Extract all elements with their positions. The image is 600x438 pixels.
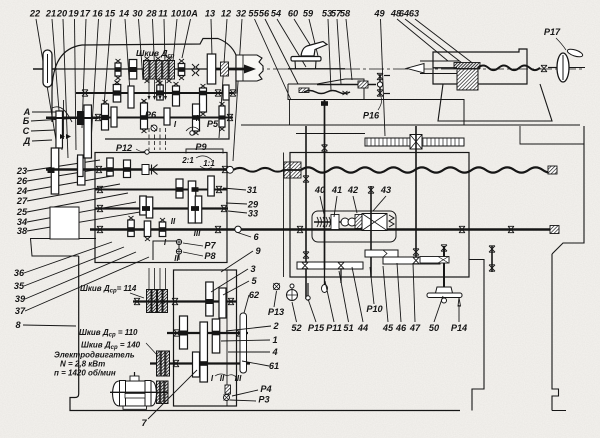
svg-text:35: 35 xyxy=(14,281,25,291)
svg-text:17: 17 xyxy=(80,9,91,19)
svg-text:56: 56 xyxy=(259,9,270,19)
svg-text:Шкив Дср= 114: Шкив Дср= 114 xyxy=(80,284,137,295)
svg-text:Р16: Р16 xyxy=(363,111,380,121)
svg-text:1:1: 1:1 xyxy=(203,159,215,168)
svg-text:10А: 10А xyxy=(181,9,198,19)
svg-text:III: III xyxy=(235,374,242,383)
svg-text:Р11: Р11 xyxy=(326,323,342,333)
svg-text:5: 5 xyxy=(251,276,257,286)
svg-text:58: 58 xyxy=(340,9,351,19)
svg-text:60: 60 xyxy=(288,9,299,19)
svg-text:52: 52 xyxy=(291,323,302,333)
svg-text:1: 1 xyxy=(272,335,277,345)
svg-text:13: 13 xyxy=(205,9,215,19)
svg-text:12: 12 xyxy=(221,9,232,19)
svg-text:Р9: Р9 xyxy=(195,142,207,152)
svg-text:II: II xyxy=(171,217,176,226)
svg-text:Б: Б xyxy=(23,116,30,126)
svg-text:II: II xyxy=(220,374,225,383)
svg-text:Р3: Р3 xyxy=(258,395,269,405)
svg-text:п = 1420 об/мин: п = 1420 об/мин xyxy=(54,369,116,378)
svg-text:20: 20 xyxy=(56,9,68,19)
svg-text:Д: Д xyxy=(23,136,31,146)
svg-text:Р4: Р4 xyxy=(260,384,271,394)
svg-text:Р7: Р7 xyxy=(204,241,216,251)
svg-text:3: 3 xyxy=(250,264,255,274)
svg-text:С: С xyxy=(23,126,30,136)
svg-text:45: 45 xyxy=(382,323,394,333)
svg-text:59: 59 xyxy=(303,9,314,19)
svg-text:28: 28 xyxy=(145,9,157,19)
svg-text:N = 2,8 кВт: N = 2,8 кВт xyxy=(60,360,105,369)
svg-text:41: 41 xyxy=(331,185,342,195)
svg-text:63: 63 xyxy=(409,9,419,19)
svg-text:Р14: Р14 xyxy=(451,323,467,333)
svg-text:2:1: 2:1 xyxy=(181,156,194,165)
svg-text:51: 51 xyxy=(343,323,353,333)
svg-text:Р15: Р15 xyxy=(308,323,325,333)
svg-text:III: III xyxy=(194,229,201,238)
svg-text:27: 27 xyxy=(16,196,28,206)
svg-text:Р8: Р8 xyxy=(204,251,216,261)
svg-text:Р12: Р12 xyxy=(116,143,133,153)
svg-text:2: 2 xyxy=(272,321,279,331)
svg-text:Электродвигатель: Электродвигатель xyxy=(54,351,135,360)
svg-text:19: 19 xyxy=(68,9,79,19)
svg-text:11: 11 xyxy=(158,9,168,19)
svg-text:8: 8 xyxy=(15,320,21,330)
svg-text:49: 49 xyxy=(373,9,385,19)
svg-text:38: 38 xyxy=(17,226,28,236)
svg-text:31: 31 xyxy=(247,185,257,195)
svg-text:6: 6 xyxy=(253,232,259,242)
svg-text:Р10: Р10 xyxy=(366,304,383,314)
svg-text:21: 21 xyxy=(45,9,56,19)
svg-text:26: 26 xyxy=(16,176,28,186)
svg-text:Р6: Р6 xyxy=(145,110,157,120)
svg-text:25: 25 xyxy=(16,207,28,217)
svg-text:39: 39 xyxy=(15,294,26,304)
svg-text:II: II xyxy=(174,254,179,263)
svg-text:50: 50 xyxy=(429,323,440,333)
svg-text:30: 30 xyxy=(132,9,143,19)
svg-text:46: 46 xyxy=(395,323,407,333)
svg-text:33: 33 xyxy=(248,209,258,219)
svg-text:55: 55 xyxy=(248,9,259,19)
svg-text:44: 44 xyxy=(357,323,368,333)
svg-text:47: 47 xyxy=(409,323,421,333)
svg-text:24: 24 xyxy=(16,186,27,196)
svg-text:54: 54 xyxy=(271,9,281,19)
svg-text:64: 64 xyxy=(399,9,409,19)
svg-text:16: 16 xyxy=(92,9,103,19)
svg-text:9: 9 xyxy=(255,246,261,256)
svg-text:61: 61 xyxy=(269,361,279,371)
svg-text:32: 32 xyxy=(236,9,247,19)
svg-text:7: 7 xyxy=(141,418,147,428)
svg-text:14: 14 xyxy=(119,9,129,19)
svg-text:Р13: Р13 xyxy=(268,307,284,317)
svg-text:62: 62 xyxy=(249,290,260,300)
svg-text:Р5: Р5 xyxy=(207,119,219,129)
svg-text:22: 22 xyxy=(29,9,41,19)
svg-text:37: 37 xyxy=(15,306,26,316)
svg-text:4: 4 xyxy=(271,347,277,357)
svg-text:II: II xyxy=(196,114,201,123)
svg-text:23: 23 xyxy=(16,166,27,176)
svg-text:43: 43 xyxy=(380,185,391,195)
svg-text:Шкив Дср = 110: Шкив Дср = 110 xyxy=(79,328,138,339)
svg-text:Р17: Р17 xyxy=(544,27,561,37)
svg-text:15: 15 xyxy=(105,9,116,19)
svg-text:42: 42 xyxy=(347,185,359,195)
svg-text:36: 36 xyxy=(14,268,25,278)
